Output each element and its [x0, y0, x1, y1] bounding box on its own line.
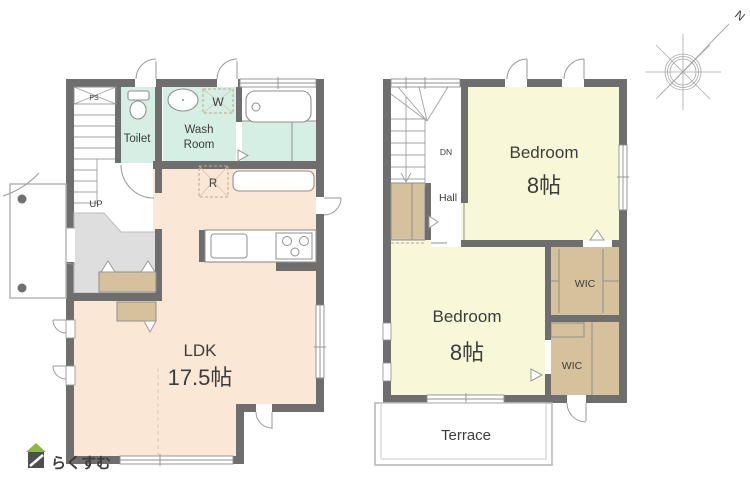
compass-rose: N [645, 8, 748, 110]
room-size-bedroom2: 8帖 [450, 340, 484, 365]
room-bedroom1-floor [461, 87, 619, 240]
room-label-toilet: Toilet [124, 133, 152, 145]
logo-house-roof-icon [26, 443, 46, 452]
room-size-bedroom1: 8帖 [527, 173, 561, 198]
room-size-ldk: 17.5帖 [168, 365, 233, 390]
ldk-side-counter [233, 171, 314, 191]
room-label-wic2: WIC [562, 360, 583, 372]
floor2-plan: DN Hall [375, 59, 629, 465]
rear-door [316, 197, 341, 215]
terrace-label: Terrace [441, 427, 491, 444]
hall-closet [391, 183, 425, 240]
floor1-plan: PS UP W R [3, 59, 341, 466]
toilet-top-door [135, 59, 156, 87]
room-label-ldk: LDK [183, 341, 217, 360]
room-label-washroom-2: Room [184, 139, 215, 151]
bathtub [246, 91, 311, 122]
bedroom1-top-door-right [562, 59, 584, 87]
up-label: UP [89, 199, 102, 210]
room-label-bedroom2: Bedroom [433, 307, 502, 326]
washbasin [168, 89, 198, 111]
notch-door [256, 404, 272, 429]
entrance-porch [3, 173, 66, 298]
ldk-bottom-window [120, 454, 233, 466]
north-label: N [732, 8, 748, 24]
terrace-door [567, 395, 586, 422]
stair-top-window [391, 77, 460, 89]
side-window-lower [53, 366, 75, 385]
fridge-label: R [209, 178, 217, 190]
ps-label: PS [89, 95, 99, 102]
bath-top-window [240, 77, 316, 89]
room-bath-floor [242, 121, 316, 161]
side-window-upper [53, 320, 75, 338]
room-label-bedroom1: Bedroom [510, 143, 579, 162]
bedroom1-top-door-left [505, 59, 527, 87]
hall-label: Hall [439, 192, 457, 204]
terrace: Terrace [375, 403, 552, 465]
room-wic2-floor [551, 322, 619, 395]
porch-post [18, 284, 27, 293]
bedroom1-right-window [617, 145, 629, 210]
room-label-wic1: WIC [575, 278, 596, 290]
room-label-washroom-1: Wash [185, 124, 214, 136]
kitchen-counter [205, 230, 316, 262]
ldk-right-window [314, 305, 326, 378]
brand-text: らくすむ [51, 455, 111, 472]
washroom-top-door [217, 59, 238, 87]
bedroom2-door [431, 240, 461, 247]
floorplan-canvas: PS UP W R [0, 0, 750, 480]
floorplan-page: PS UP W R [0, 0, 750, 480]
washer-label: W [212, 95, 224, 109]
dn-label: DN [440, 147, 452, 157]
north-arrow-head [703, 24, 729, 52]
porch-post [18, 195, 27, 204]
